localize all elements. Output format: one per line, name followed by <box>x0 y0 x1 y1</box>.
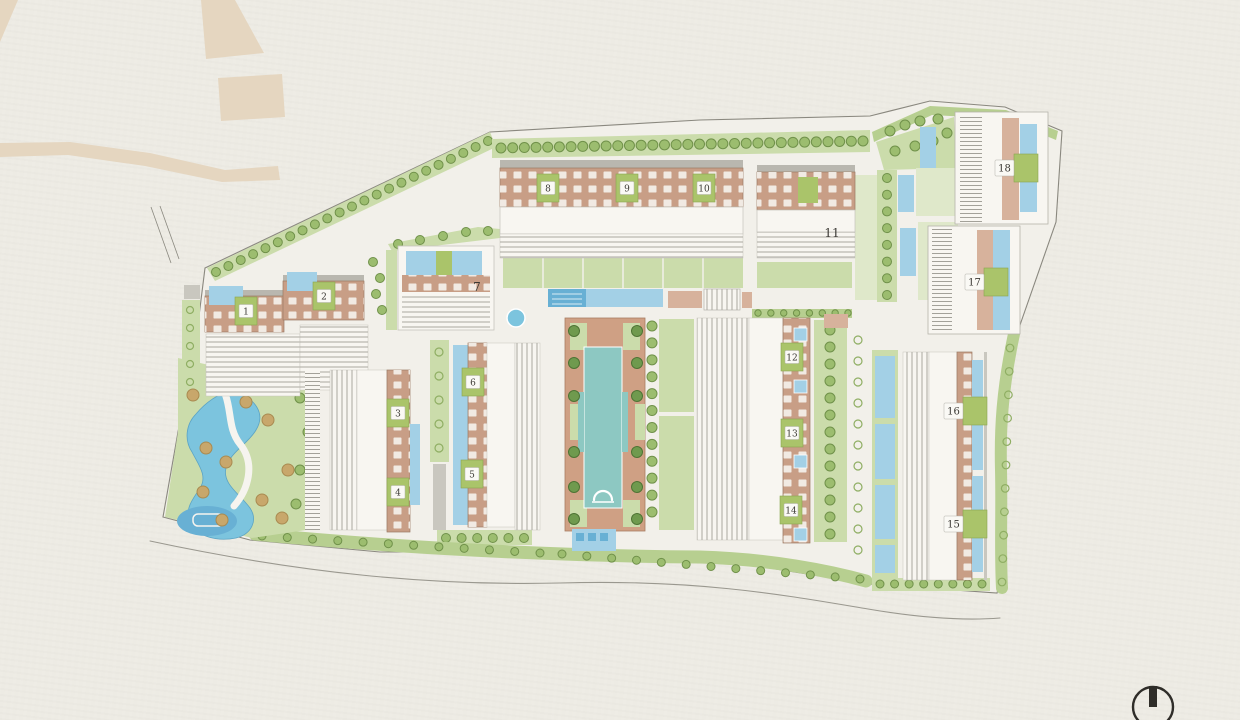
tree-row <box>647 422 657 432</box>
tree <box>376 274 385 283</box>
courtyard-green <box>635 404 645 440</box>
roof-pool <box>452 251 482 275</box>
building-3-4-pattern <box>387 370 410 532</box>
palm-tree <box>220 456 232 468</box>
tree-row <box>647 473 657 483</box>
tree-row <box>335 208 344 217</box>
building-label-6: 6 <box>462 368 484 396</box>
building-number: 7 <box>473 280 481 294</box>
tree-row <box>446 154 455 163</box>
building-label-14: 14 <box>780 496 802 524</box>
palm-tree <box>240 396 252 408</box>
decor-corner-shape <box>0 0 18 42</box>
tree-row <box>883 274 892 283</box>
tree-row <box>488 534 497 543</box>
tree-row <box>776 138 786 148</box>
tree-row <box>531 142 541 152</box>
tree-row <box>543 142 553 152</box>
tree-row <box>825 444 835 454</box>
tree-row <box>310 220 319 229</box>
building-number: 10 <box>698 185 710 195</box>
green-square <box>963 397 987 425</box>
building-label-9: 9 <box>616 174 638 202</box>
tree <box>890 146 900 156</box>
tree-row <box>334 537 342 545</box>
tree-row <box>647 389 657 399</box>
palm-tree <box>632 482 643 493</box>
tree-row <box>825 342 835 352</box>
palm-tree <box>569 391 580 402</box>
tree-row <box>624 141 634 151</box>
building-label-1: 1 <box>235 297 257 325</box>
building-number: 11 <box>824 226 839 240</box>
master-plan-drawing: 123456789101112131415161718 <box>0 0 1240 720</box>
tree-row <box>811 137 821 147</box>
palm-tree <box>632 514 643 525</box>
palm-tree <box>569 514 580 525</box>
pavilion <box>668 291 702 308</box>
building-number: 15 <box>947 520 960 531</box>
building-number: 6 <box>470 379 476 389</box>
tree-row <box>636 140 646 150</box>
pool-15-16 <box>875 545 895 573</box>
deck-pattern <box>757 232 855 258</box>
green-square <box>1014 154 1038 182</box>
building-number: 1 <box>243 308 249 318</box>
palm-tree <box>187 389 199 401</box>
tree-row <box>536 549 544 557</box>
tree-row <box>765 138 775 148</box>
tree-row <box>825 529 835 539</box>
building-label-13: 13 <box>781 419 803 447</box>
building-label-4: 4 <box>387 478 409 506</box>
tree-row <box>806 571 814 579</box>
tree-row <box>978 580 986 588</box>
tree <box>915 116 925 126</box>
deck-pattern <box>500 234 743 258</box>
building-label-12: 12 <box>781 343 803 371</box>
palm-tree <box>282 464 294 476</box>
building-number: 2 <box>321 293 327 303</box>
tree-row <box>613 141 623 151</box>
terrace-deck-pattern <box>206 334 300 396</box>
tree-row <box>876 580 884 588</box>
palm-tree <box>216 514 228 526</box>
tree <box>439 232 448 241</box>
decor-block-shape <box>218 74 285 121</box>
pergola-pattern <box>305 370 320 530</box>
tree-row <box>825 512 835 522</box>
tree-row <box>782 569 790 577</box>
roofline <box>500 160 743 168</box>
tree-row <box>825 495 835 505</box>
building-label-3: 3 <box>387 399 409 427</box>
tree-row <box>768 310 774 316</box>
tree-row <box>273 238 282 247</box>
roof-pool <box>406 251 436 275</box>
building-label-7: 7 <box>473 280 481 294</box>
villa-pool <box>898 175 914 212</box>
villa-pool <box>920 127 936 168</box>
palm-tree <box>262 414 274 426</box>
tree-row <box>800 137 810 147</box>
tree-row <box>647 338 657 348</box>
pool-15-16 <box>875 356 895 418</box>
tree-row <box>883 224 892 233</box>
tree-row <box>286 232 295 241</box>
round-pool <box>507 309 525 327</box>
tree-row <box>504 534 513 543</box>
tree-row <box>384 540 392 548</box>
tree-row <box>485 546 493 554</box>
tree-row <box>647 507 657 517</box>
palm-tree <box>276 512 288 524</box>
tree-row <box>695 139 705 149</box>
tree-row <box>831 573 839 581</box>
tree-row <box>682 560 690 568</box>
building-number: 16 <box>947 407 960 418</box>
tree <box>910 141 920 151</box>
kids-pool-square <box>588 533 596 541</box>
tree <box>900 120 910 130</box>
mid-lawn <box>659 319 694 412</box>
tree-row <box>730 138 740 148</box>
tree-row <box>647 406 657 416</box>
tree-row <box>578 141 588 151</box>
tree-row <box>589 141 599 151</box>
tree-row <box>608 554 616 562</box>
palm-tree <box>632 326 643 337</box>
tree-row <box>755 310 761 316</box>
compass-north-bar <box>1149 686 1157 707</box>
plunge-pool <box>794 380 807 393</box>
tree-row <box>757 567 765 575</box>
offsite-road-line <box>151 207 171 263</box>
plunge-pool <box>794 455 807 468</box>
tree-row <box>753 138 763 148</box>
pool-3-4 <box>410 424 420 505</box>
building-number: 18 <box>998 164 1011 175</box>
tree-row <box>224 262 233 271</box>
deck-pattern <box>697 318 749 540</box>
pool-15-16 <box>875 485 895 539</box>
palm-tree <box>200 442 212 454</box>
decor-ribbon-shape <box>0 142 280 182</box>
decor-column-shape <box>201 0 264 59</box>
tree-row <box>825 478 835 488</box>
pavilion <box>742 292 752 308</box>
tree-row <box>633 556 641 564</box>
tree-row <box>473 534 482 543</box>
tree-row <box>601 141 611 151</box>
plunge-pool <box>794 328 807 341</box>
deck-pattern <box>402 294 490 328</box>
building-number: 13 <box>786 430 798 440</box>
tree-row <box>460 544 468 552</box>
tree <box>942 128 952 138</box>
palm-tree <box>632 447 643 458</box>
tree-row <box>283 534 291 542</box>
tree-row <box>583 552 591 560</box>
pool-15-16 <box>972 534 983 572</box>
tree-row <box>883 257 892 266</box>
kids-pool-square <box>600 533 608 541</box>
terrace <box>487 343 515 527</box>
tree-row <box>856 575 864 583</box>
building-label-10: 10 <box>693 174 715 202</box>
tree-row <box>707 563 715 571</box>
deck-pattern <box>960 116 982 222</box>
tree-row <box>471 142 480 151</box>
roof-pool <box>287 272 317 291</box>
lawn-below-11 <box>757 262 852 288</box>
tree-row <box>309 535 317 543</box>
building-number: 14 <box>785 507 797 517</box>
tree-row <box>858 136 868 146</box>
tree-row <box>360 196 369 205</box>
pavilion-pattern <box>704 289 740 310</box>
tree-row <box>409 172 418 181</box>
main-pool-wing <box>622 392 628 452</box>
tree-row <box>934 580 942 588</box>
roofline <box>757 165 855 172</box>
tree-row <box>883 174 892 183</box>
tree-row <box>348 202 357 211</box>
building-label-5: 5 <box>461 460 483 488</box>
palm-tree <box>197 486 209 498</box>
tree-row <box>647 439 657 449</box>
tree <box>885 126 895 136</box>
tree-row <box>434 160 443 169</box>
tree-row <box>905 580 913 588</box>
tree <box>484 227 493 236</box>
tree-row <box>647 490 657 500</box>
tree <box>416 236 425 245</box>
tree-row <box>825 393 835 403</box>
wall <box>184 285 200 299</box>
villa-pool <box>900 228 916 276</box>
pavilion <box>824 314 848 328</box>
building-label-11: 11 <box>824 226 839 240</box>
tree-row <box>683 139 693 149</box>
tree-row <box>397 178 406 187</box>
mid-lawn <box>659 416 694 530</box>
tree-row <box>963 580 971 588</box>
tree-row <box>212 268 221 277</box>
tree-row <box>261 244 270 253</box>
tree-row <box>442 534 451 543</box>
main-pool-wing <box>578 392 584 452</box>
wall <box>984 352 987 580</box>
tree <box>462 228 471 237</box>
tree-row <box>435 543 443 551</box>
palm-tree <box>569 326 580 337</box>
units-column-pattern <box>330 370 357 530</box>
terrace <box>757 210 855 232</box>
building-15-16-pattern <box>957 352 972 580</box>
tree-row <box>385 184 394 193</box>
terrace <box>749 318 783 540</box>
palm-tree <box>632 358 643 369</box>
palm-tree <box>569 447 580 458</box>
tree-row <box>835 136 845 146</box>
tree-row <box>825 410 835 420</box>
building-number: 3 <box>395 410 401 420</box>
tree-row <box>410 541 418 549</box>
tree-row <box>457 534 466 543</box>
tree <box>372 290 381 299</box>
tree-row <box>806 310 812 316</box>
tree-row <box>920 580 928 588</box>
kids-pool-square <box>576 533 584 541</box>
tree-row <box>883 291 892 300</box>
tree-row <box>236 256 245 265</box>
tree-row <box>825 376 835 386</box>
villa-lawn <box>916 168 956 216</box>
building-number: 8 <box>545 185 551 195</box>
tree-row <box>825 427 835 437</box>
green-west-strip <box>182 300 200 395</box>
tree-row <box>249 250 258 259</box>
terrace <box>357 370 387 530</box>
tree-row <box>949 580 957 588</box>
tree-row <box>706 139 716 149</box>
tree <box>369 258 378 267</box>
tree-row <box>657 558 665 566</box>
tree-row <box>883 190 892 199</box>
deck-pattern <box>903 352 929 580</box>
tree-row <box>459 148 468 157</box>
palm-tree <box>256 494 268 506</box>
tree-row <box>554 142 564 152</box>
palm-tree <box>569 358 580 369</box>
tree-row <box>793 310 799 316</box>
tree-row <box>648 140 658 150</box>
tree <box>933 114 943 124</box>
tree-row <box>883 240 892 249</box>
tree-row <box>825 359 835 369</box>
tree-row <box>671 140 681 150</box>
green-square <box>963 510 987 538</box>
tree-row <box>558 550 566 558</box>
tree <box>378 306 387 315</box>
tree-row <box>788 137 798 147</box>
palm-tree <box>569 482 580 493</box>
building-number: 4 <box>395 489 401 499</box>
wall <box>433 464 446 530</box>
tree-row <box>519 143 529 153</box>
tree <box>295 465 305 475</box>
tree-row <box>372 190 381 199</box>
building-number: 17 <box>968 278 981 289</box>
tree-row <box>566 142 576 152</box>
tree-row <box>718 139 728 149</box>
tree-row <box>883 207 892 216</box>
building-label-2: 2 <box>313 282 335 310</box>
plan-features-layer <box>0 0 1062 619</box>
tree-row <box>741 138 751 148</box>
tree-row <box>659 140 669 150</box>
building-number: 12 <box>786 354 797 364</box>
north-compass-icon <box>1133 686 1173 720</box>
tree-row <box>298 226 307 235</box>
tree-row <box>496 143 506 153</box>
terrace <box>929 352 957 580</box>
tree-row <box>508 143 518 153</box>
green-square <box>984 268 1008 296</box>
green-strip <box>386 250 397 330</box>
pool-15-16 <box>972 418 983 470</box>
offsite-road-line <box>160 206 179 259</box>
tree-row <box>647 456 657 466</box>
plunge-pool <box>794 528 807 541</box>
tree-row <box>511 547 519 555</box>
deck-pattern <box>932 228 952 332</box>
pool-15-16 <box>875 424 895 479</box>
tree-row <box>484 137 493 146</box>
tree-row <box>823 137 833 147</box>
tree-row <box>846 136 856 146</box>
tree-row <box>647 321 657 331</box>
tree <box>291 499 301 509</box>
tree-row <box>359 538 367 546</box>
tree-row <box>825 461 835 471</box>
tree-row <box>647 355 657 365</box>
tree-row <box>323 214 332 223</box>
main-pool <box>584 347 622 508</box>
tree-row <box>781 310 787 316</box>
terrace <box>500 207 743 234</box>
site-plan-page: 123456789101112131415161718 <box>0 0 1240 720</box>
green-square <box>798 177 818 203</box>
tree-row <box>647 372 657 382</box>
tree-row <box>422 166 431 175</box>
tree-row <box>732 565 740 573</box>
building-label-8: 8 <box>537 174 559 202</box>
tree-row <box>520 534 529 543</box>
building-number: 9 <box>624 185 630 195</box>
lawn-east-11 <box>855 175 877 300</box>
building-number: 5 <box>469 471 475 481</box>
tree-row <box>891 580 899 588</box>
palm-tree <box>632 391 643 402</box>
deck-pattern <box>515 343 540 530</box>
